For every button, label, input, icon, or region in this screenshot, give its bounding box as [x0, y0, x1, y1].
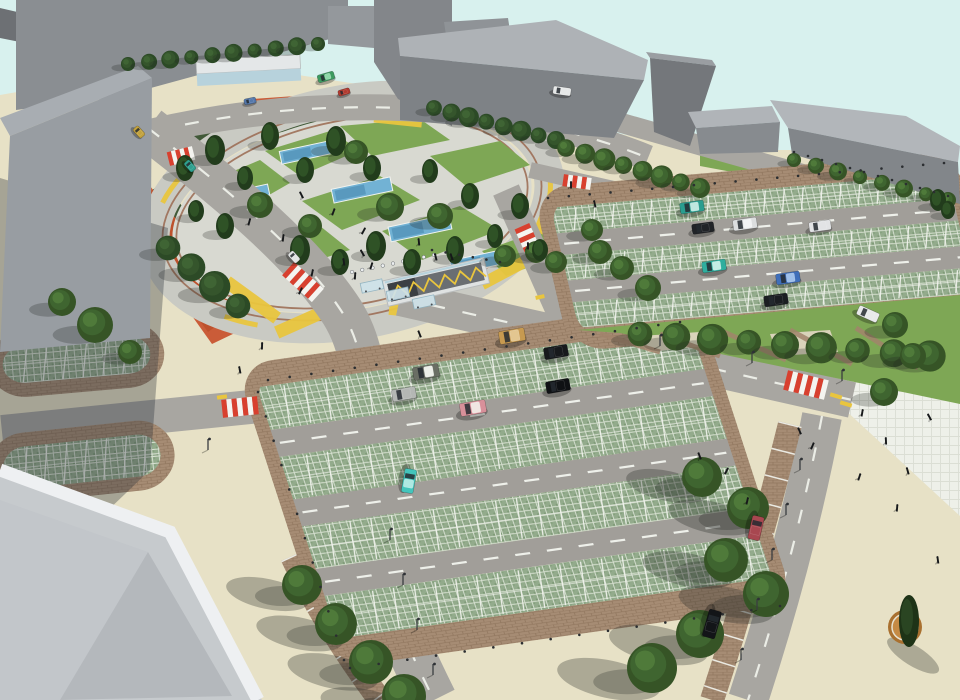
tree-canopy-highlight: [832, 165, 839, 172]
bollard: [863, 171, 866, 174]
tree-canopy-highlight: [549, 254, 558, 263]
bollard: [657, 324, 660, 327]
round-bollard: [350, 270, 354, 274]
bollard: [288, 488, 291, 491]
car-roof: [701, 223, 709, 232]
tree-canopy-highlight: [322, 609, 339, 626]
conifer-highlight: [424, 161, 434, 177]
bollard: [458, 254, 461, 257]
conifer-highlight: [448, 238, 459, 257]
tree-canopy-highlight: [445, 106, 452, 113]
tree-canopy-highlight: [230, 297, 240, 307]
car-roof: [786, 273, 795, 283]
bollard: [880, 167, 883, 170]
tree-canopy-highlight: [123, 59, 129, 65]
round-bollard: [360, 268, 364, 272]
small-block-face: [328, 6, 374, 48]
tree-canopy-highlight: [617, 159, 624, 166]
bollard: [943, 162, 946, 165]
bollard: [304, 537, 307, 540]
tree-canopy-highlight: [886, 316, 896, 326]
tree-canopy-highlight: [849, 342, 859, 352]
car-roof: [561, 88, 568, 94]
conifer-highlight: [368, 233, 380, 253]
bollard: [947, 195, 950, 198]
bollard: [499, 261, 502, 264]
tree-canopy-highlight: [811, 160, 817, 166]
bollard: [431, 249, 434, 252]
tree-canopy-highlight: [462, 110, 470, 118]
tree-canopy-highlight: [597, 152, 606, 161]
tree-canopy-highlight: [182, 258, 193, 269]
tree-canopy-highlight: [291, 40, 298, 47]
pedestrian-body: [239, 368, 240, 373]
car-roof: [324, 73, 331, 80]
car-roof: [774, 295, 783, 305]
tree-canopy-highlight: [348, 144, 358, 154]
bollard: [588, 193, 591, 196]
bollard: [435, 654, 438, 657]
bollard: [265, 415, 268, 418]
conifer-highlight: [263, 124, 274, 143]
pedestrian-body: [435, 255, 436, 260]
tree-canopy-highlight: [614, 260, 624, 270]
bollard: [607, 630, 610, 633]
conifer-highlight: [207, 137, 219, 157]
lamp-head: [842, 369, 845, 372]
car-roof: [403, 479, 414, 489]
conifer-highlight: [298, 159, 309, 177]
bollard: [901, 165, 904, 168]
tree-canopy-highlight: [160, 239, 170, 249]
conifer-highlight: [489, 226, 499, 242]
bollard: [891, 179, 894, 182]
bollard: [614, 330, 617, 333]
tree-canopy-highlight: [636, 164, 644, 172]
bollard: [933, 191, 936, 194]
bollard: [672, 186, 675, 189]
tree-canopy-highlight: [740, 334, 750, 344]
tree-canopy-highlight: [52, 292, 63, 303]
lamp-head: [800, 458, 803, 461]
bollard: [288, 376, 291, 379]
tree-canopy-highlight: [389, 681, 407, 699]
tree-canopy-highlight: [498, 248, 507, 257]
bollard: [693, 184, 696, 187]
round-bollard: [391, 262, 395, 266]
bollard: [838, 171, 841, 174]
bollard: [463, 650, 466, 653]
bollard: [651, 187, 654, 190]
tree-canopy-highlight: [122, 344, 132, 354]
conifer-highlight: [328, 128, 340, 148]
bollard: [335, 634, 338, 637]
car-roof: [556, 380, 566, 391]
pedestrian-body: [344, 260, 345, 265]
tree-canopy-highlight: [550, 134, 557, 141]
pedestrian-body: [746, 499, 747, 504]
round-bollard: [381, 264, 385, 268]
pedestrian-body: [283, 236, 284, 241]
bollard: [349, 667, 352, 670]
tree-canopy-highlight: [639, 279, 649, 289]
tree-canopy-highlight: [877, 177, 883, 183]
conifer-highlight: [534, 241, 544, 256]
tree-canopy-highlight: [380, 197, 391, 208]
tree-canopy-highlight: [635, 651, 655, 671]
conifer-highlight: [218, 215, 229, 233]
bollard: [440, 354, 443, 357]
tree-canopy-highlight: [481, 116, 487, 122]
bollard: [549, 339, 552, 342]
pedestrian-body: [594, 202, 595, 207]
bollard: [327, 610, 330, 613]
bollard: [505, 345, 508, 348]
car-roof: [690, 202, 699, 212]
conifer-highlight: [942, 202, 950, 214]
bollard: [919, 187, 922, 190]
bollard: [492, 646, 495, 649]
tree-canopy-highlight: [431, 207, 441, 217]
bollard: [807, 155, 810, 158]
tree-canopy-highlight: [560, 142, 567, 149]
bollard: [609, 191, 612, 194]
conifer-highlight: [405, 251, 416, 269]
bollard: [444, 251, 447, 254]
lamp-head: [757, 598, 760, 601]
tree-canopy-highlight: [711, 545, 729, 563]
tree-canopy-highlight: [227, 47, 234, 54]
tree-canopy-highlight: [83, 312, 97, 326]
conifer-highlight: [239, 168, 249, 184]
bollard: [635, 327, 638, 330]
tree-canopy-highlight: [288, 571, 304, 587]
conifer-highlight: [932, 191, 942, 206]
bollard: [630, 189, 633, 192]
bollard: [849, 167, 852, 170]
bollard: [570, 336, 573, 339]
tree-canopy-highlight: [667, 327, 678, 338]
bollard: [353, 366, 356, 369]
bollard: [592, 333, 595, 336]
car-roof: [402, 388, 412, 399]
bollard: [859, 169, 862, 172]
bollard: [635, 625, 638, 628]
cypress-highlight: [901, 599, 913, 635]
bollard: [821, 159, 824, 162]
pedestrian-head: [570, 181, 572, 183]
tree-canopy-highlight: [429, 102, 435, 108]
pedestrian-body: [862, 411, 863, 416]
car-roof: [424, 366, 435, 378]
tree-canopy-highlight: [144, 56, 150, 62]
bollard: [267, 379, 270, 382]
bollard: [905, 183, 908, 186]
red-white-crosswalk: [221, 396, 259, 418]
lamp-head: [752, 351, 755, 354]
lamp-head: [772, 548, 775, 551]
tree-canopy-highlight: [855, 172, 861, 178]
bollard: [568, 195, 571, 198]
car-roof: [743, 219, 752, 229]
round-bollard: [422, 255, 426, 259]
bollard: [485, 258, 488, 261]
bollard: [310, 373, 313, 376]
tree-canopy-highlight: [898, 182, 905, 189]
lamp-head: [433, 663, 436, 666]
bollard: [343, 659, 346, 662]
bollard: [664, 621, 667, 624]
tree-canopy-highlight: [874, 382, 885, 393]
tree-canopy-highlight: [356, 647, 374, 665]
lamp-head: [741, 648, 744, 651]
bollard: [679, 321, 682, 324]
tree-canopy-highlight: [498, 120, 505, 127]
bollard: [693, 617, 696, 620]
tree-canopy-highlight: [578, 147, 586, 155]
bollard: [377, 663, 380, 666]
lamp-head: [403, 573, 406, 576]
lamp-head: [660, 334, 663, 337]
tree-canopy-highlight: [921, 189, 927, 195]
bollard: [406, 658, 409, 661]
tree-canopy-highlight: [688, 463, 704, 479]
tree-canopy-highlight: [592, 244, 602, 254]
tree-canopy-highlight: [250, 46, 256, 52]
car-roof: [818, 221, 826, 230]
bollard: [332, 370, 335, 373]
tree-canopy-highlight: [187, 52, 193, 58]
bollard: [779, 605, 782, 608]
bollard: [521, 642, 524, 645]
tree-canopy-highlight: [270, 43, 276, 49]
lamp-head: [390, 528, 393, 531]
bollard: [472, 256, 475, 259]
bollard: [280, 464, 283, 467]
bollard: [311, 561, 314, 564]
urban-plan-3d-render: [0, 0, 960, 700]
tree-canopy-highlight: [789, 155, 795, 161]
tree-canopy-highlight: [675, 176, 682, 183]
tree-canopy-highlight: [884, 343, 895, 354]
bollard: [397, 360, 400, 363]
lamp-head: [208, 438, 211, 441]
tree-canopy-highlight: [585, 222, 594, 231]
car-roof: [510, 330, 521, 342]
bollard: [818, 173, 821, 176]
bollard: [578, 634, 581, 637]
tree-canopy-highlight: [204, 276, 217, 289]
tree-canopy-highlight: [302, 218, 312, 228]
bollard: [835, 163, 838, 166]
lamp-head: [417, 618, 420, 621]
tree-canopy-highlight: [750, 578, 768, 596]
bollard: [734, 180, 737, 183]
pedestrian-body: [311, 271, 312, 276]
bollard: [257, 391, 260, 394]
pedestrian-body: [419, 240, 420, 245]
bollard: [549, 638, 552, 641]
bollard: [713, 182, 716, 185]
tree-canopy-highlight: [811, 337, 824, 350]
bollard: [527, 342, 530, 345]
bollard: [750, 609, 753, 612]
tree-canopy-highlight: [533, 130, 539, 136]
tree-canopy-highlight: [313, 39, 319, 45]
bollard: [462, 351, 465, 354]
conifer-highlight: [513, 195, 524, 213]
car-roof: [249, 99, 254, 103]
bollard: [755, 178, 758, 181]
tree-canopy-highlight: [904, 347, 914, 357]
bollard: [877, 175, 880, 178]
car-roof: [554, 346, 564, 357]
bollard: [375, 363, 378, 366]
tree-canopy-highlight: [514, 124, 522, 132]
car-roof: [712, 261, 721, 271]
tree-canopy-highlight: [654, 169, 663, 178]
tree-canopy-highlight: [207, 50, 213, 56]
bollard: [793, 151, 796, 154]
bollard: [922, 164, 925, 167]
mid-slab: [688, 106, 780, 154]
tree-canopy-highlight: [775, 335, 786, 346]
bollard: [418, 357, 421, 360]
bollard: [797, 175, 800, 178]
tree-canopy-highlight: [164, 53, 171, 60]
bollard: [272, 439, 275, 442]
bollard: [484, 348, 487, 351]
tree-canopy-highlight: [251, 196, 261, 206]
conifer-highlight: [190, 202, 200, 217]
car-roof: [750, 526, 761, 536]
bollard: [721, 613, 724, 616]
render-viewport: [0, 0, 960, 700]
bollard: [547, 197, 550, 200]
tree-canopy-highlight: [702, 329, 715, 342]
bollard: [776, 176, 779, 179]
bollard: [319, 586, 322, 589]
conifer-highlight: [365, 157, 376, 175]
car-roof: [471, 402, 482, 414]
lamp-head: [786, 503, 789, 506]
bollard: [296, 513, 299, 516]
pedestrian-body: [938, 558, 939, 563]
conifer-highlight: [463, 185, 474, 203]
small-block: [328, 6, 374, 48]
